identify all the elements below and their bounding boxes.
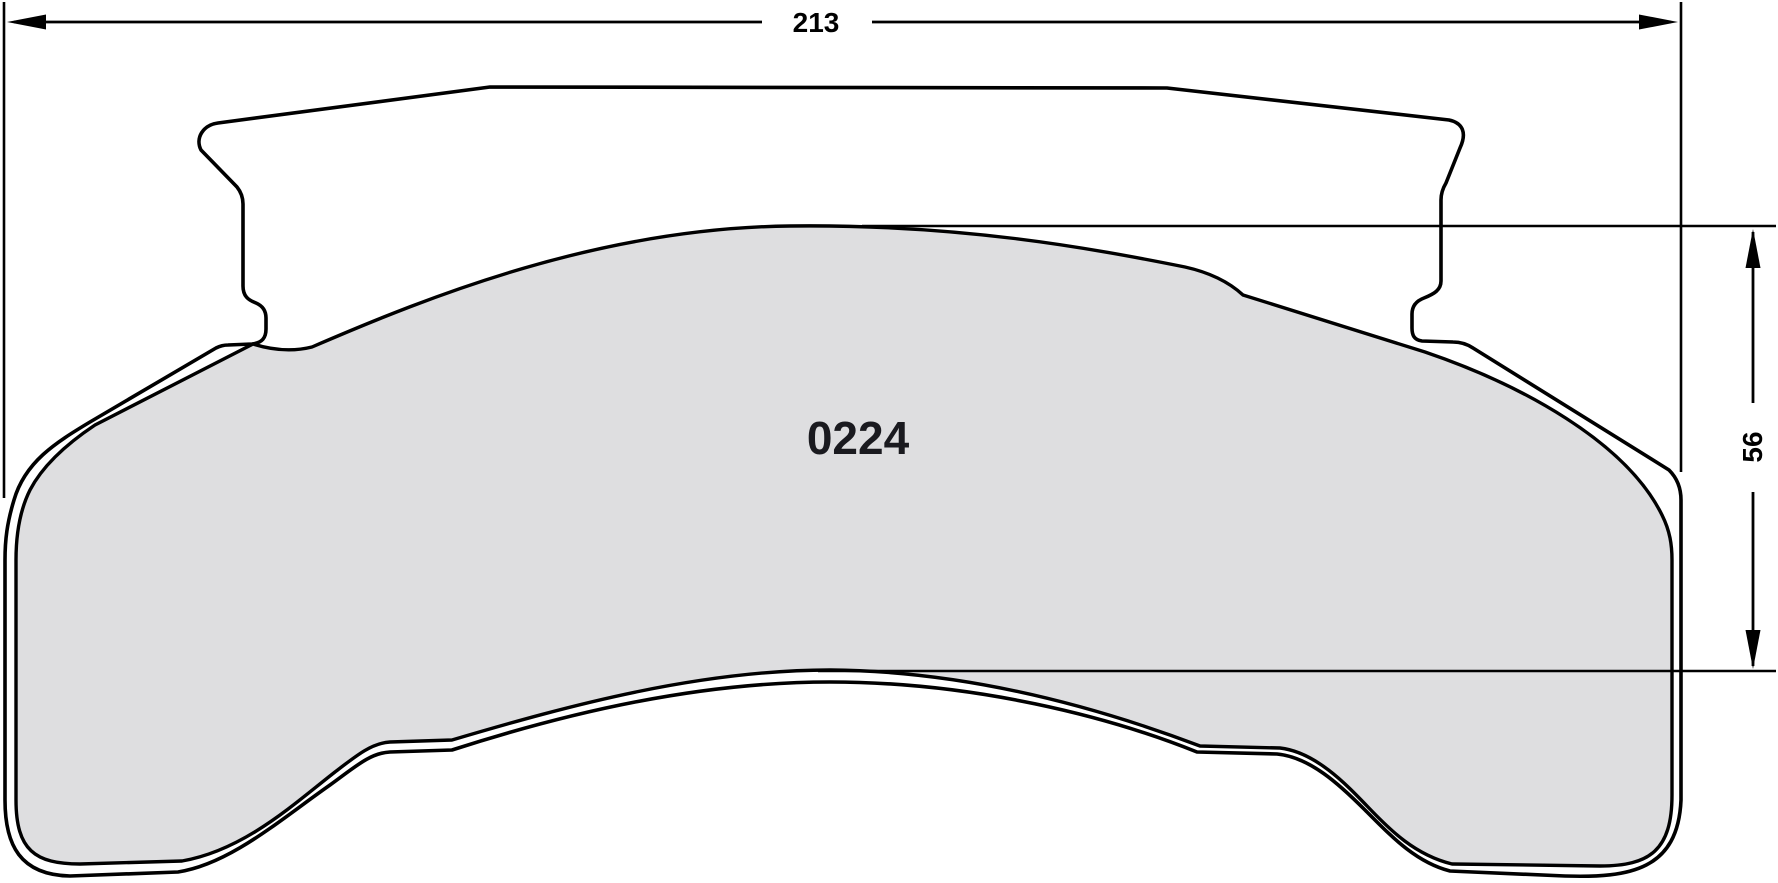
drawing-canvas: 213 0224 56 bbox=[0, 0, 1778, 883]
height-dimension-value: 56 bbox=[1737, 431, 1768, 462]
arrow-left-icon bbox=[7, 15, 46, 30]
arrow-up-icon bbox=[1746, 229, 1761, 268]
brake-pad-technical-drawing: 213 0224 56 bbox=[0, 0, 1778, 883]
arrow-right-icon bbox=[1639, 15, 1678, 30]
height-dimension: 56 bbox=[1737, 229, 1768, 669]
arrow-down-icon bbox=[1746, 630, 1761, 669]
part-number-label: 0224 bbox=[807, 412, 910, 464]
width-dimension-value: 213 bbox=[793, 7, 840, 38]
width-dimension: 213 bbox=[7, 7, 1678, 38]
